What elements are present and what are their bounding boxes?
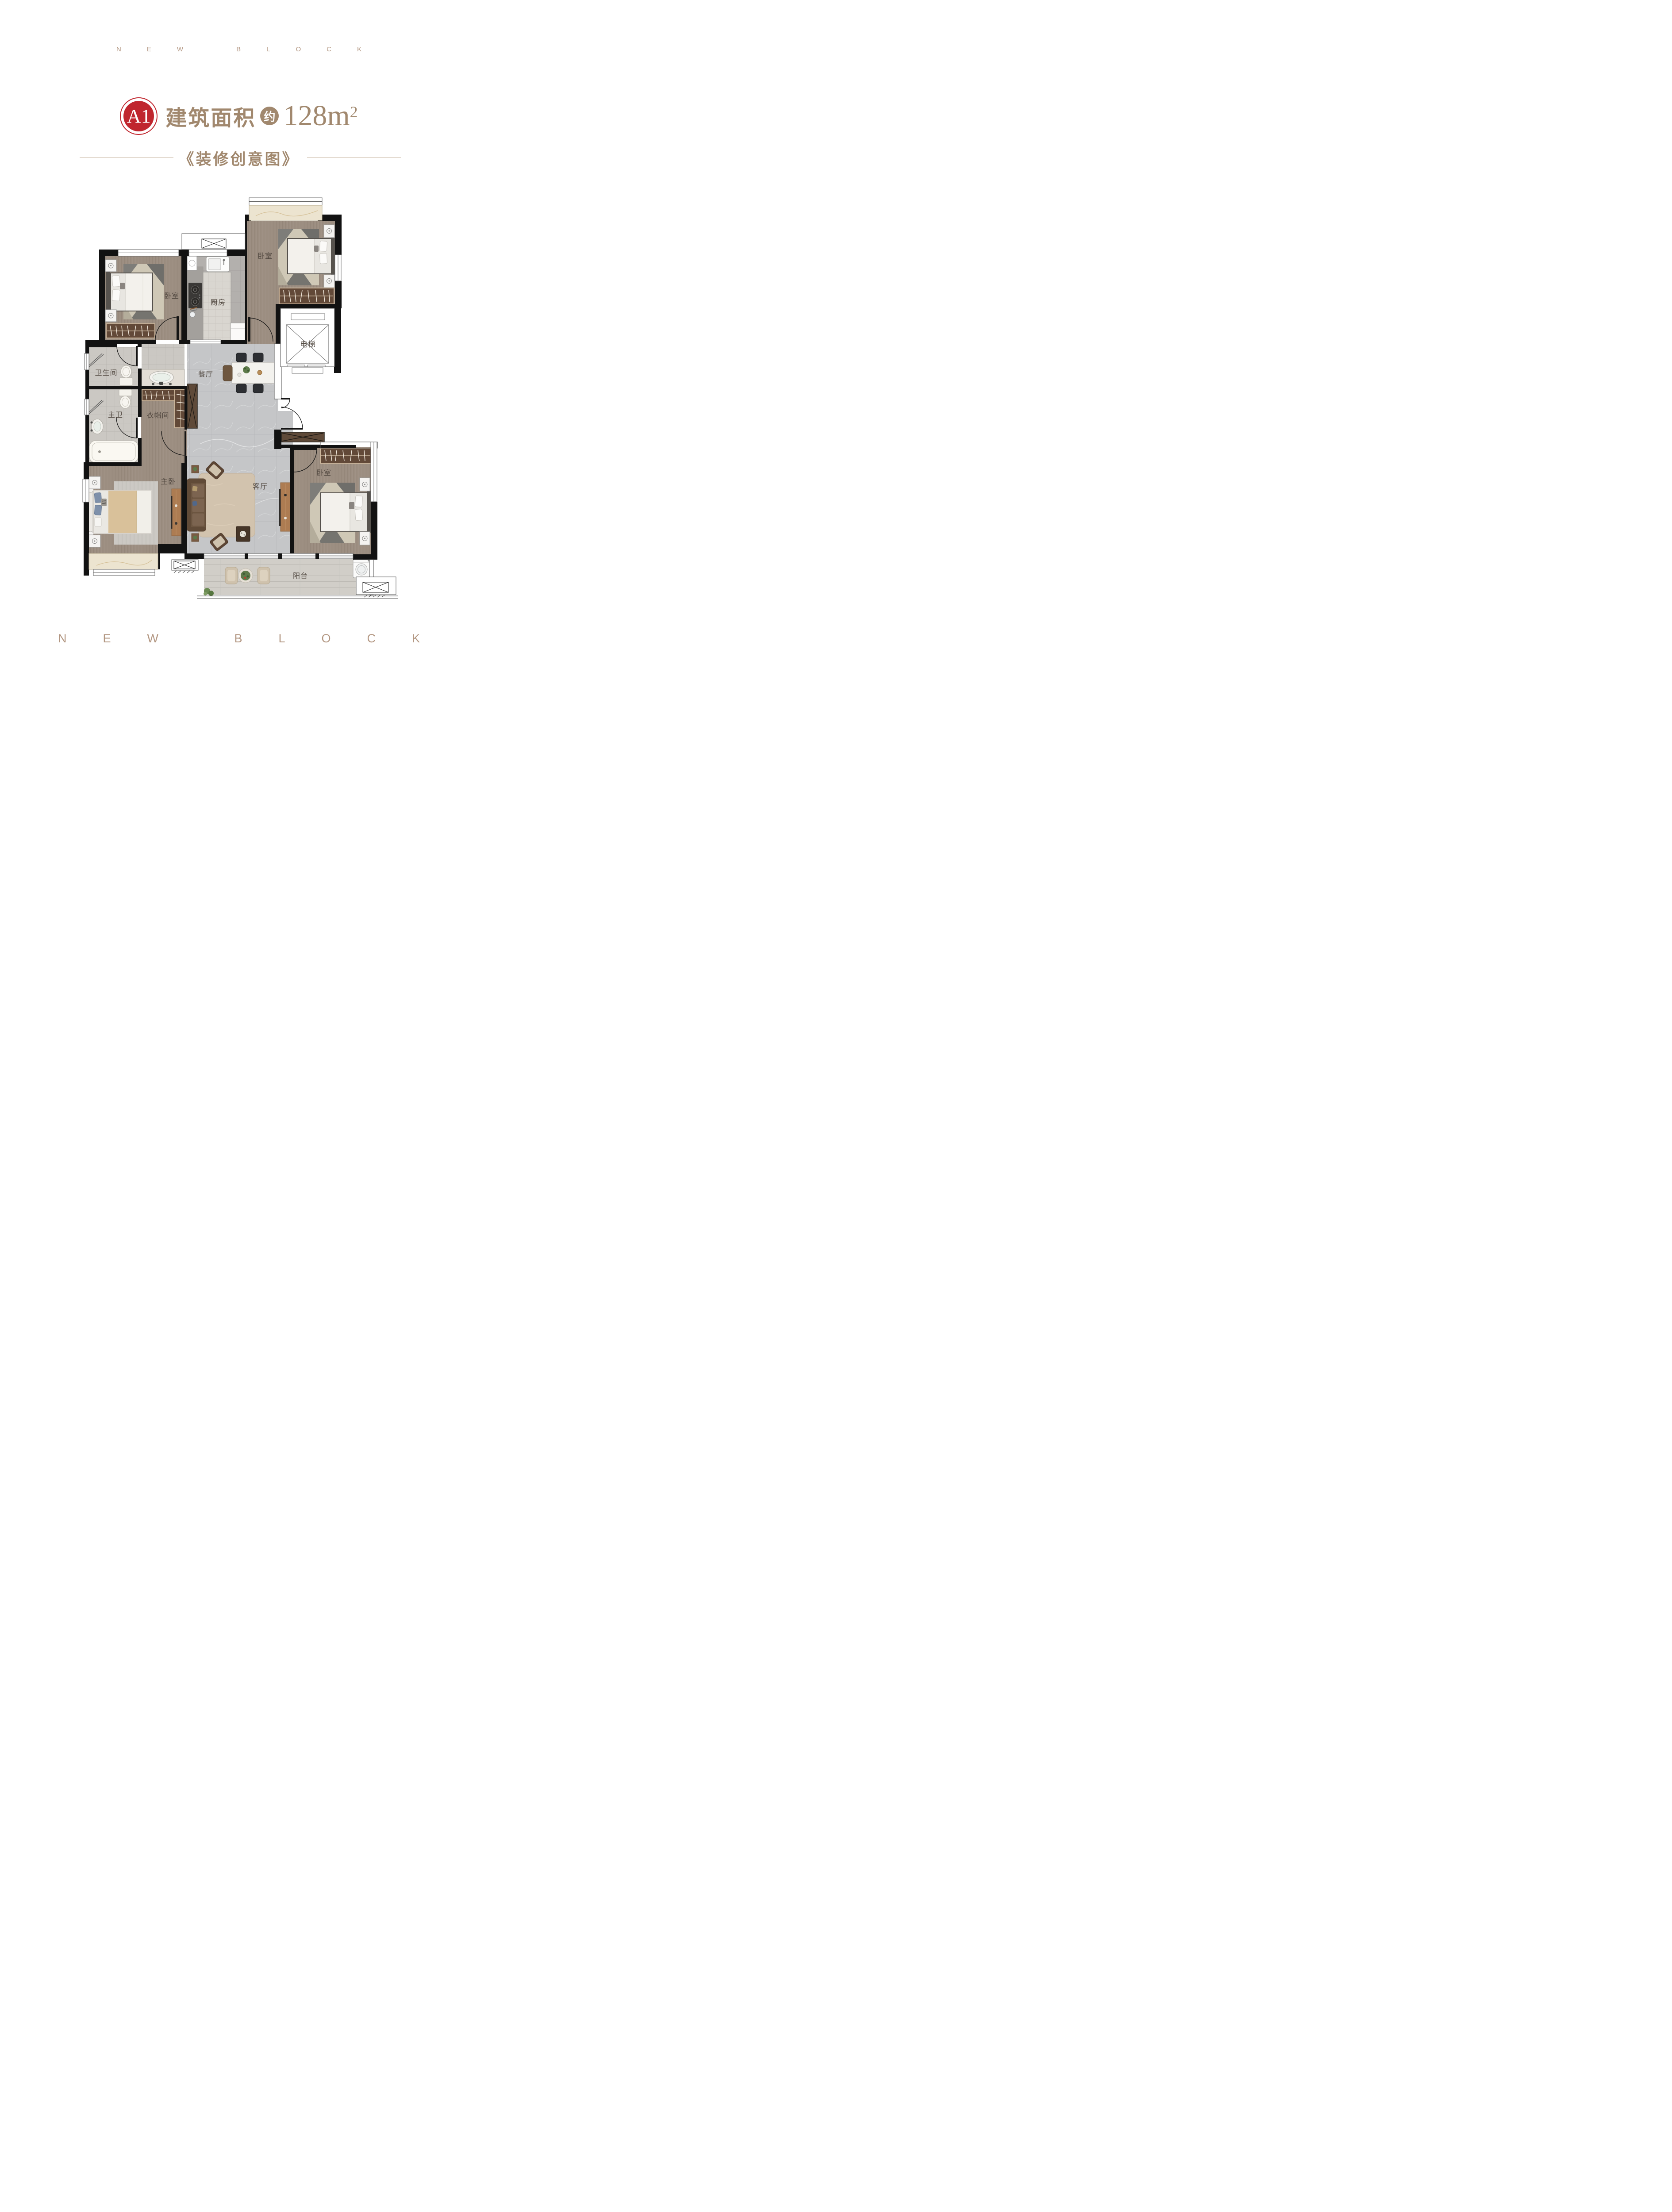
room-label-bathroom: 卫生间 bbox=[95, 369, 117, 377]
room-label-bedroom-ne: 卧室 bbox=[258, 252, 273, 260]
plant-icon bbox=[238, 568, 253, 583]
unit-badge-label: A1 bbox=[123, 101, 154, 131]
room-label-master-bedroom: 主卧 bbox=[161, 478, 176, 486]
window bbox=[371, 442, 377, 502]
room-label-master-bath: 主卫 bbox=[108, 411, 123, 419]
room-label-dining: 餐厅 bbox=[198, 370, 213, 378]
water-heater-icon bbox=[187, 256, 197, 270]
room-label-living: 客厅 bbox=[253, 483, 268, 491]
hallway-floor bbox=[142, 344, 184, 370]
window bbox=[118, 250, 179, 256]
bathtub-icon bbox=[89, 441, 138, 463]
bed-icon bbox=[320, 491, 371, 533]
ac-unit-icon bbox=[172, 560, 198, 573]
coffee-table-icon bbox=[236, 526, 250, 541]
room-label-elevator: 电梯 bbox=[300, 340, 316, 349]
bay-window bbox=[249, 198, 322, 220]
plant-icon bbox=[243, 366, 250, 373]
washing-machine-icon bbox=[353, 559, 371, 578]
duct-shaft bbox=[182, 234, 245, 250]
chair-icon bbox=[223, 365, 232, 381]
bed-icon bbox=[106, 272, 153, 312]
window bbox=[189, 250, 227, 256]
tv-icon bbox=[279, 489, 281, 526]
wardrobe-icon bbox=[106, 324, 155, 338]
brand-bottom: NEW BLOCK bbox=[0, 632, 478, 645]
wardrobe-icon bbox=[279, 288, 334, 304]
area-value: 128m2 bbox=[283, 101, 357, 131]
room-label-kitchen: 厨房 bbox=[211, 299, 226, 307]
sofa-icon bbox=[187, 479, 206, 531]
room-label-bedroom-se: 卧室 bbox=[316, 469, 331, 477]
wardrobe-icon bbox=[142, 390, 175, 401]
bay-window bbox=[89, 553, 158, 576]
sink-icon bbox=[206, 257, 229, 272]
floor-plan: 卧室 厨房 卧室 电梯 卫生间 主卫 衣帽间 餐厅 主卧 客厅 卧室 阳台 bbox=[81, 196, 410, 604]
subtitle-rule-right bbox=[307, 157, 401, 157]
fridge-icon bbox=[231, 323, 245, 340]
tv-icon bbox=[171, 496, 173, 529]
stove-icon bbox=[188, 283, 202, 308]
window bbox=[85, 399, 89, 415]
room-label-cloakroom: 衣帽间 bbox=[146, 411, 169, 419]
sliding-door bbox=[204, 553, 353, 559]
subtitle: 《装修创意图》 bbox=[0, 147, 478, 169]
wardrobe-icon bbox=[320, 448, 371, 463]
entry-cabinet-icon bbox=[281, 432, 324, 442]
ac-unit-icon bbox=[356, 577, 396, 597]
page-title: 建筑面积 bbox=[165, 100, 256, 131]
bedroom-ne-furniture bbox=[278, 225, 335, 304]
bed-icon bbox=[287, 237, 335, 275]
approx-circle: 约 bbox=[260, 107, 279, 125]
room-label-balcony: 阳台 bbox=[293, 572, 308, 580]
room-label-bedroom-nw: 卧室 bbox=[164, 292, 179, 300]
poster-page: NEW BLOCK A1 建筑面积 约 128m2 《装修创意图》 bbox=[0, 0, 478, 687]
title-row: A1 建筑面积 约 128m2 bbox=[0, 94, 478, 138]
brand-top: NEW BLOCK bbox=[0, 46, 478, 53]
bed-icon bbox=[88, 487, 152, 537]
window bbox=[83, 479, 89, 502]
toilet-icon bbox=[119, 389, 132, 408]
floor-plan-svg: 卧室 厨房 卧室 电梯 卫生间 主卫 衣帽间 餐厅 主卧 客厅 卧室 阳台 bbox=[81, 196, 410, 604]
vanity-sink-icon bbox=[141, 369, 184, 386]
tv-console-icon bbox=[279, 483, 290, 531]
window bbox=[85, 353, 89, 370]
unit-badge: A1 bbox=[120, 97, 158, 135]
hall-cabinet-icon bbox=[187, 384, 197, 428]
tv-console-icon bbox=[171, 489, 181, 536]
window bbox=[335, 255, 341, 281]
bedroom-nw-furniture bbox=[105, 260, 164, 338]
